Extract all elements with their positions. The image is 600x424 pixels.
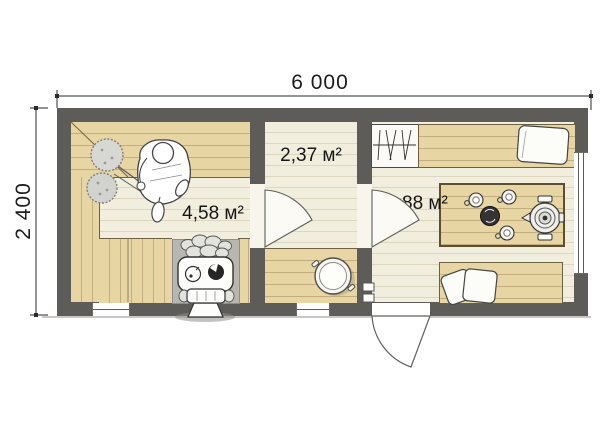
wardrobe: [371, 124, 420, 168]
sauna-upper-bench: [71, 122, 250, 178]
window-sauna: [92, 303, 130, 316]
sauna-lower-bench: [99, 238, 172, 303]
window-washroom: [296, 303, 330, 316]
lounge-bench-top: [418, 124, 575, 168]
stove-niche: [172, 239, 240, 304]
floor-plan-canvas: 6 000 2 400 4,58 м² 2,37 м² 4,88 м²: [0, 0, 600, 424]
entry-door-swing-icon: [372, 316, 430, 367]
area-label-washroom: 2,37 м²: [251, 145, 371, 167]
washroom-bench: [265, 248, 357, 303]
height-dimension-label: 2 400: [12, 161, 36, 261]
sauna-side-bench: [71, 177, 100, 302]
window-lounge: [574, 152, 588, 274]
ground-shadow: [42, 316, 591, 318]
entry-door-opening: [372, 303, 430, 316]
area-label-sauna: 4,58 м²: [153, 203, 273, 225]
area-label-lounge: 4,88 м²: [357, 193, 477, 215]
width-dimension-label: 6 000: [255, 71, 385, 95]
lounge-bench-bottom: [439, 262, 563, 304]
